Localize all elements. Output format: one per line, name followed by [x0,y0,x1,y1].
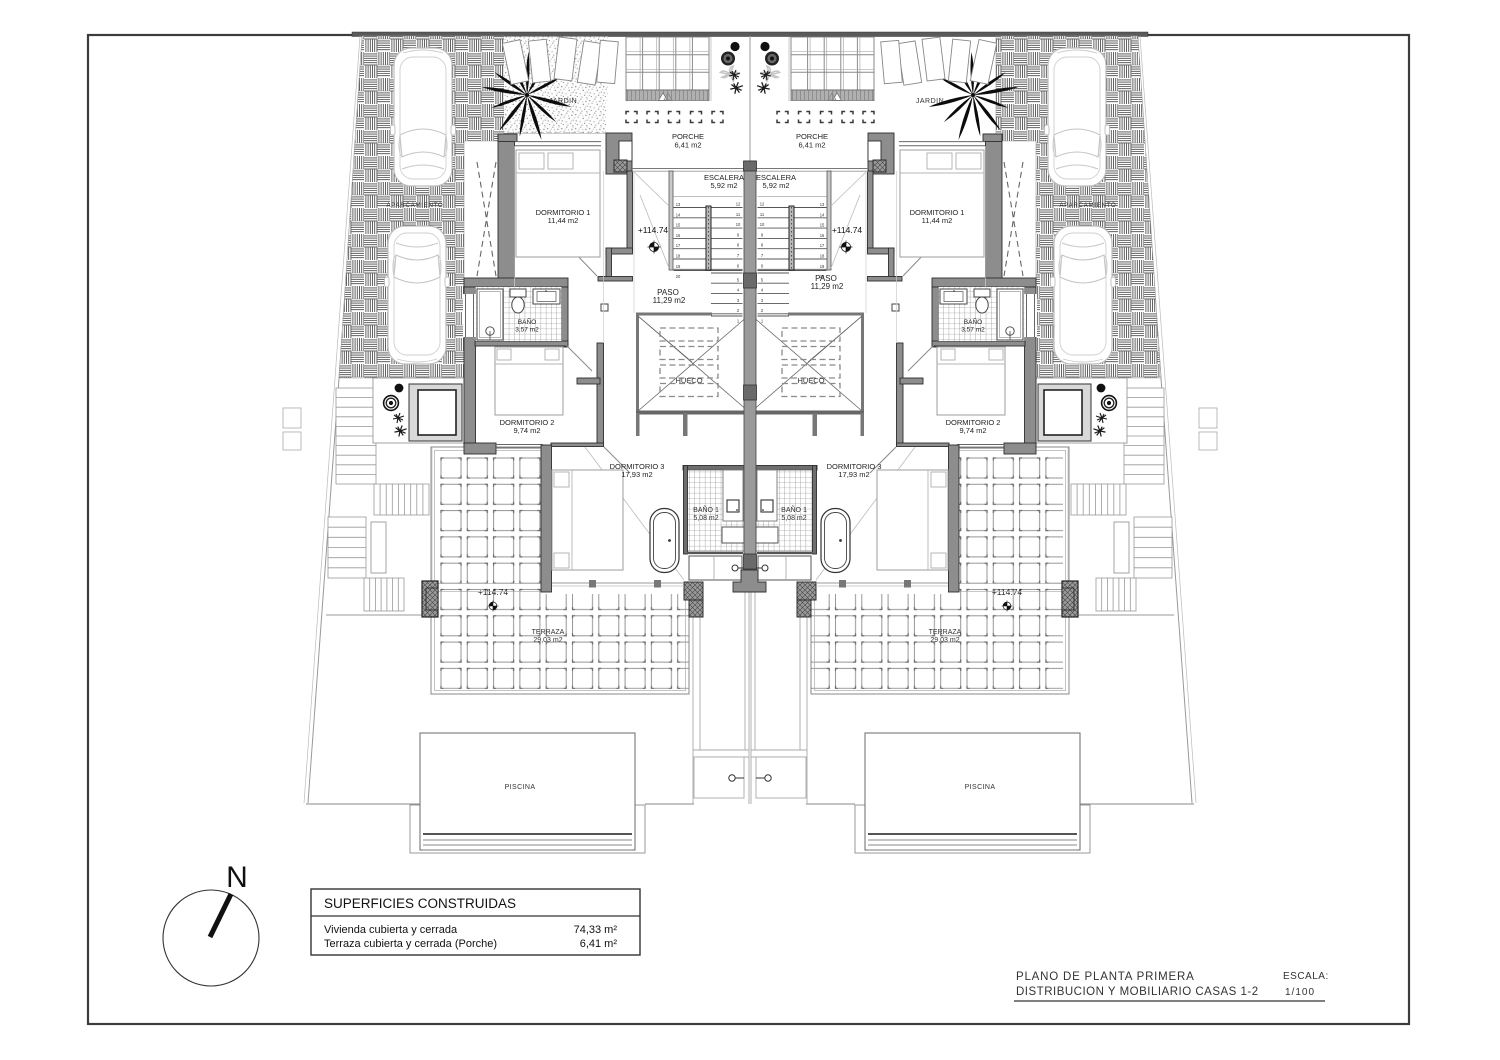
svg-text:+114.74: +114.74 [478,587,509,597]
svg-text:11,29 m2: 11,29 m2 [811,282,844,291]
svg-text:29,03 m2: 29,03 m2 [930,637,959,644]
svg-text:16: 16 [820,233,825,238]
svg-text:9,74 m2: 9,74 m2 [959,426,986,435]
svg-text:20: 20 [676,274,681,279]
svg-text:APARCAMIENTO: APARCAMIENTO [1059,203,1116,209]
svg-text:HUECO: HUECO [675,376,702,385]
svg-text:BAÑO 1: BAÑO 1 [693,505,719,514]
svg-text:14: 14 [676,212,681,217]
svg-text:PLANO DE PLANTA PRIMERA: PLANO DE PLANTA PRIMERA [1016,971,1195,983]
svg-text:PISCINA: PISCINA [505,784,536,791]
svg-text:10: 10 [760,222,765,227]
svg-text:11,44 m2: 11,44 m2 [548,216,579,225]
svg-text:12: 12 [736,202,741,207]
svg-text:17: 17 [676,243,681,248]
svg-text:19: 19 [676,264,681,269]
svg-text:11,29 m2: 11,29 m2 [653,296,686,305]
svg-text:14: 14 [820,212,825,217]
svg-text:11: 11 [736,212,741,217]
svg-text:12: 12 [760,202,765,207]
svg-text:18: 18 [820,254,825,259]
svg-text:BAÑO: BAÑO [964,317,982,326]
svg-text:6,41 m2: 6,41 m2 [674,141,701,150]
svg-text:5,92 m2: 5,92 m2 [762,181,789,190]
svg-text:Terraza cubierta y cerrada (P: Terraza cubierta y cerrada (Porche) [324,938,497,950]
svg-text:74,33 m²: 74,33 m² [574,924,618,936]
svg-text:16: 16 [676,233,681,238]
svg-text:3,57 m2: 3,57 m2 [515,327,539,334]
svg-text:13: 13 [676,202,681,207]
svg-text:29,03 m2: 29,03 m2 [533,637,562,644]
svg-text:TERRAZA: TERRAZA [929,629,962,636]
svg-text:15: 15 [676,223,681,228]
svg-text:APARCAMIENTO: APARCAMIENTO [386,203,443,209]
svg-text:15: 15 [820,223,825,228]
svg-text:11,44 m2: 11,44 m2 [922,216,953,225]
svg-text:5,92 m2: 5,92 m2 [710,181,737,190]
svg-text:9,74 m2: 9,74 m2 [513,426,540,435]
svg-text:6,41 m2: 6,41 m2 [798,141,825,150]
svg-text:SUPERFICIES CONSTRUIDAS: SUPERFICIES CONSTRUIDAS [324,896,516,911]
svg-text:5,08 m2: 5,08 m2 [693,515,718,522]
svg-text:HUECO: HUECO [797,376,824,385]
svg-text:+114.74: +114.74 [638,225,669,235]
svg-text:BAÑO: BAÑO [518,317,536,326]
svg-text:17: 17 [820,243,825,248]
svg-text:13: 13 [820,202,825,207]
svg-text:N: N [226,861,248,894]
svg-text:5,08 m2: 5,08 m2 [781,515,806,522]
svg-text:11: 11 [760,212,765,217]
svg-text:18: 18 [676,254,681,259]
svg-text:1/100: 1/100 [1285,987,1315,998]
svg-text:+114.74: +114.74 [832,225,863,235]
svg-text:PISCINA: PISCINA [965,784,996,791]
svg-text:19: 19 [820,264,825,269]
svg-text:6,41 m²: 6,41 m² [580,938,618,950]
svg-text:3,57 m2: 3,57 m2 [961,327,985,334]
svg-text:ESCALA:: ESCALA: [1283,971,1329,982]
svg-text:TERRAZA: TERRAZA [532,629,565,636]
svg-text:10: 10 [736,222,741,227]
svg-text:+114.74: +114.74 [992,587,1023,597]
svg-text:BAÑO 1: BAÑO 1 [781,505,807,514]
svg-text:Vivienda cubierta y cerrada: Vivienda cubierta y cerrada [324,924,458,936]
svg-text:DISTRIBUCION Y MOBILIARIO CASA: DISTRIBUCION Y MOBILIARIO CASAS 1-2 [1016,986,1259,998]
svg-text:17,93 m2: 17,93 m2 [838,470,869,479]
svg-text:17,93 m2: 17,93 m2 [621,470,652,479]
